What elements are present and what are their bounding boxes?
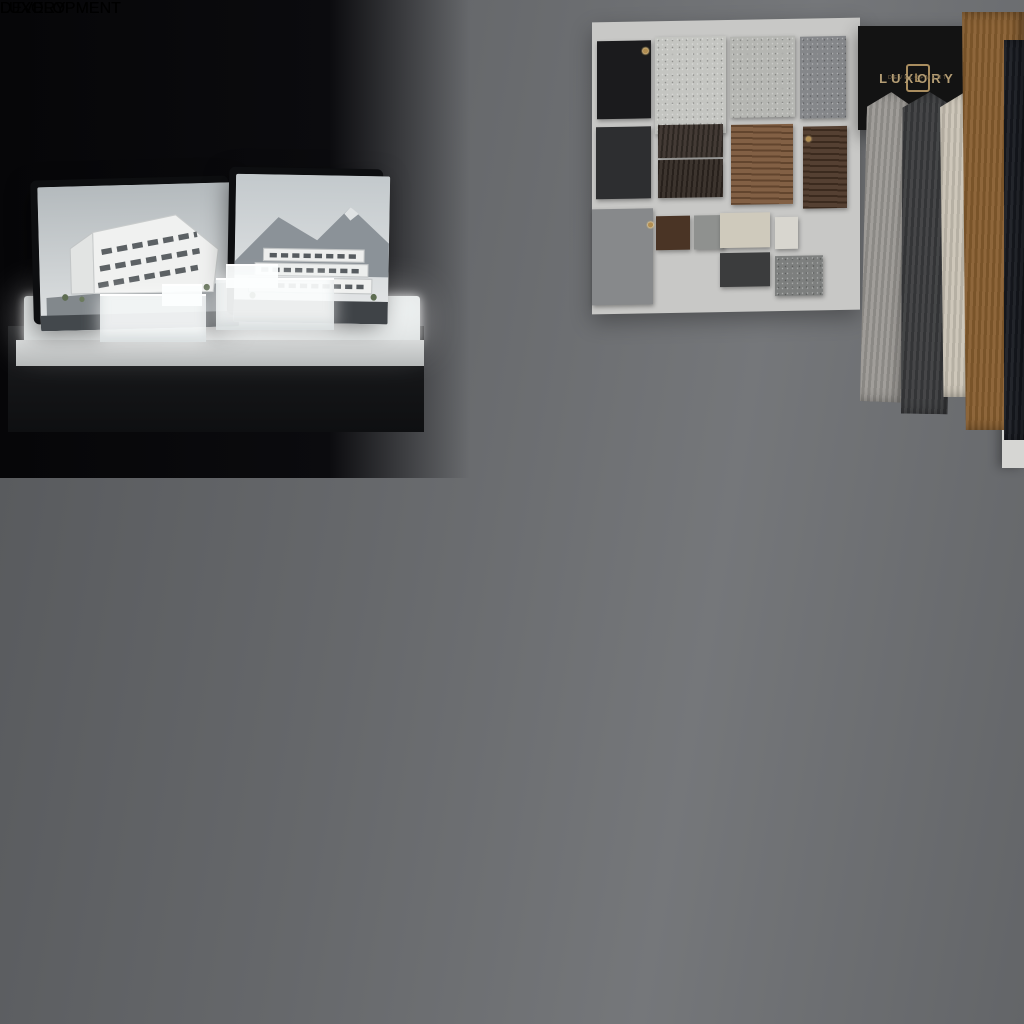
model-step xyxy=(162,284,202,306)
architecture-studio-scene: L LUXORY DEVELOPMENT xyxy=(0,0,1024,1024)
translucent-concept-model-left xyxy=(100,294,206,342)
material-tile-concrete xyxy=(730,36,795,118)
material-tile-dark-walnut xyxy=(803,126,847,209)
material-tile-ash-gray xyxy=(592,208,653,305)
material-tile-black-laminate xyxy=(597,40,651,119)
material-tile-cocoa xyxy=(656,216,690,251)
model-tree xyxy=(524,304,576,356)
sign-subtitle-text: DEVELOPMENT xyxy=(888,75,948,81)
translucent-concept-model-right xyxy=(216,278,334,330)
material-tile-charcoal xyxy=(720,252,770,287)
material-tile-stone-gray xyxy=(775,255,823,296)
illuminated-platform-front xyxy=(16,340,424,366)
material-tile-walnut xyxy=(731,124,793,205)
material-tile-ivory xyxy=(775,217,798,249)
wall-material-board xyxy=(592,18,860,315)
fabric-swatch-midnight xyxy=(1004,40,1024,440)
tree-shadow xyxy=(516,372,586,388)
material-tile-white-marble xyxy=(655,36,726,134)
white-work-table xyxy=(0,398,1024,1024)
model-tree xyxy=(608,312,660,364)
model-step xyxy=(226,264,278,288)
material-tile-sand xyxy=(720,212,770,248)
material-tile-granite xyxy=(800,36,846,119)
material-tile-espresso-oak xyxy=(658,159,723,198)
material-tile-smoked-oak xyxy=(658,124,723,158)
tree-shadow xyxy=(600,380,670,396)
material-tile-slate xyxy=(596,126,651,199)
notebook-subtitle-text: DEVELOPMENT xyxy=(0,0,121,18)
